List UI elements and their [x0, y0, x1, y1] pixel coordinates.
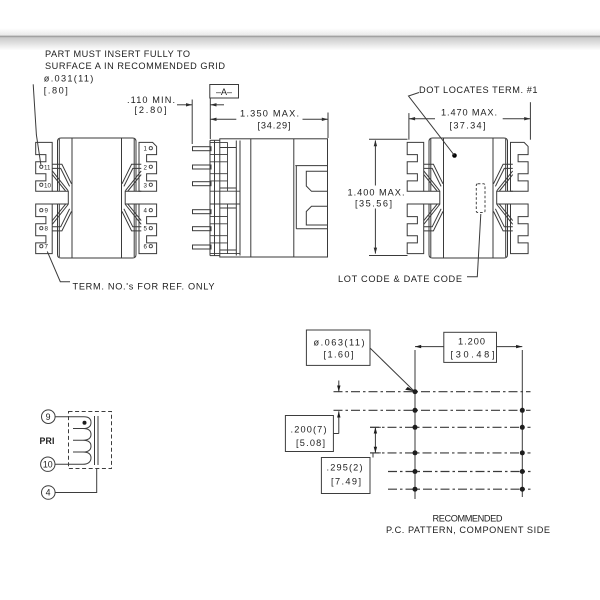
svg-text:ø.031(11): ø.031(11) [44, 73, 94, 83]
svg-text:[5.08]: [5.08] [296, 438, 325, 448]
svg-text:DOT LOCATES TERM. #1: DOT LOCATES TERM. #1 [419, 85, 538, 95]
svg-text:[35.56]: [35.56] [355, 199, 392, 209]
svg-text:RECOMMENDED: RECOMMENDED [433, 514, 503, 524]
svg-text:5: 5 [144, 226, 148, 233]
svg-text:.200(7): .200(7) [291, 425, 327, 435]
svg-text:PART MUST INSERT FULLY TO: PART MUST INSERT FULLY TO [45, 49, 190, 59]
svg-text:ø.063(11): ø.063(11) [314, 338, 365, 348]
svg-text:4: 4 [144, 208, 148, 215]
svg-text:8: 8 [45, 226, 49, 233]
svg-text:6: 6 [144, 244, 148, 251]
svg-text:P.C. PATTERN, COMPONENT SIDE: P.C. PATTERN, COMPONENT SIDE [386, 525, 550, 535]
svg-text:SURFACE A IN RECOMMENDED GRID: SURFACE A IN RECOMMENDED GRID [45, 61, 225, 71]
svg-text:1.400 MAX.: 1.400 MAX. [348, 188, 405, 198]
svg-text:1.200: 1.200 [458, 337, 485, 347]
svg-text:[30.48]: [30.48] [451, 350, 495, 360]
svg-text:[34.29]: [34.29] [258, 120, 291, 130]
svg-text:9: 9 [46, 412, 51, 422]
svg-text:3: 3 [144, 182, 148, 189]
svg-text:TERM. NO.'s FOR REF. ONLY: TERM. NO.'s FOR REF. ONLY [73, 282, 215, 292]
svg-text:7: 7 [45, 244, 49, 251]
svg-text:10: 10 [44, 182, 51, 189]
svg-text:[1.60]: [1.60] [324, 350, 354, 360]
svg-text:1: 1 [144, 146, 148, 153]
svg-text:4: 4 [46, 488, 51, 498]
svg-text:11: 11 [44, 164, 51, 171]
svg-text:[2.80]: [2.80] [135, 105, 167, 115]
svg-text:10: 10 [43, 459, 53, 469]
svg-text:1.470 MAX.: 1.470 MAX. [441, 108, 497, 118]
svg-text:.110 MIN.: .110 MIN. [127, 95, 175, 105]
svg-text:PRI: PRI [40, 436, 55, 446]
svg-text:–A–: –A– [216, 87, 233, 97]
svg-text:[.80]: [.80] [44, 86, 68, 96]
svg-text:[37.34]: [37.34] [450, 121, 486, 131]
svg-text:[7.49]: [7.49] [331, 477, 361, 487]
svg-text:.295(2): .295(2) [327, 463, 363, 473]
svg-text:9: 9 [45, 208, 49, 215]
svg-text:2: 2 [144, 164, 148, 171]
svg-text:1.350 MAX.: 1.350 MAX. [240, 108, 299, 118]
svg-text:LOT CODE & DATE CODE: LOT CODE & DATE CODE [338, 274, 462, 284]
